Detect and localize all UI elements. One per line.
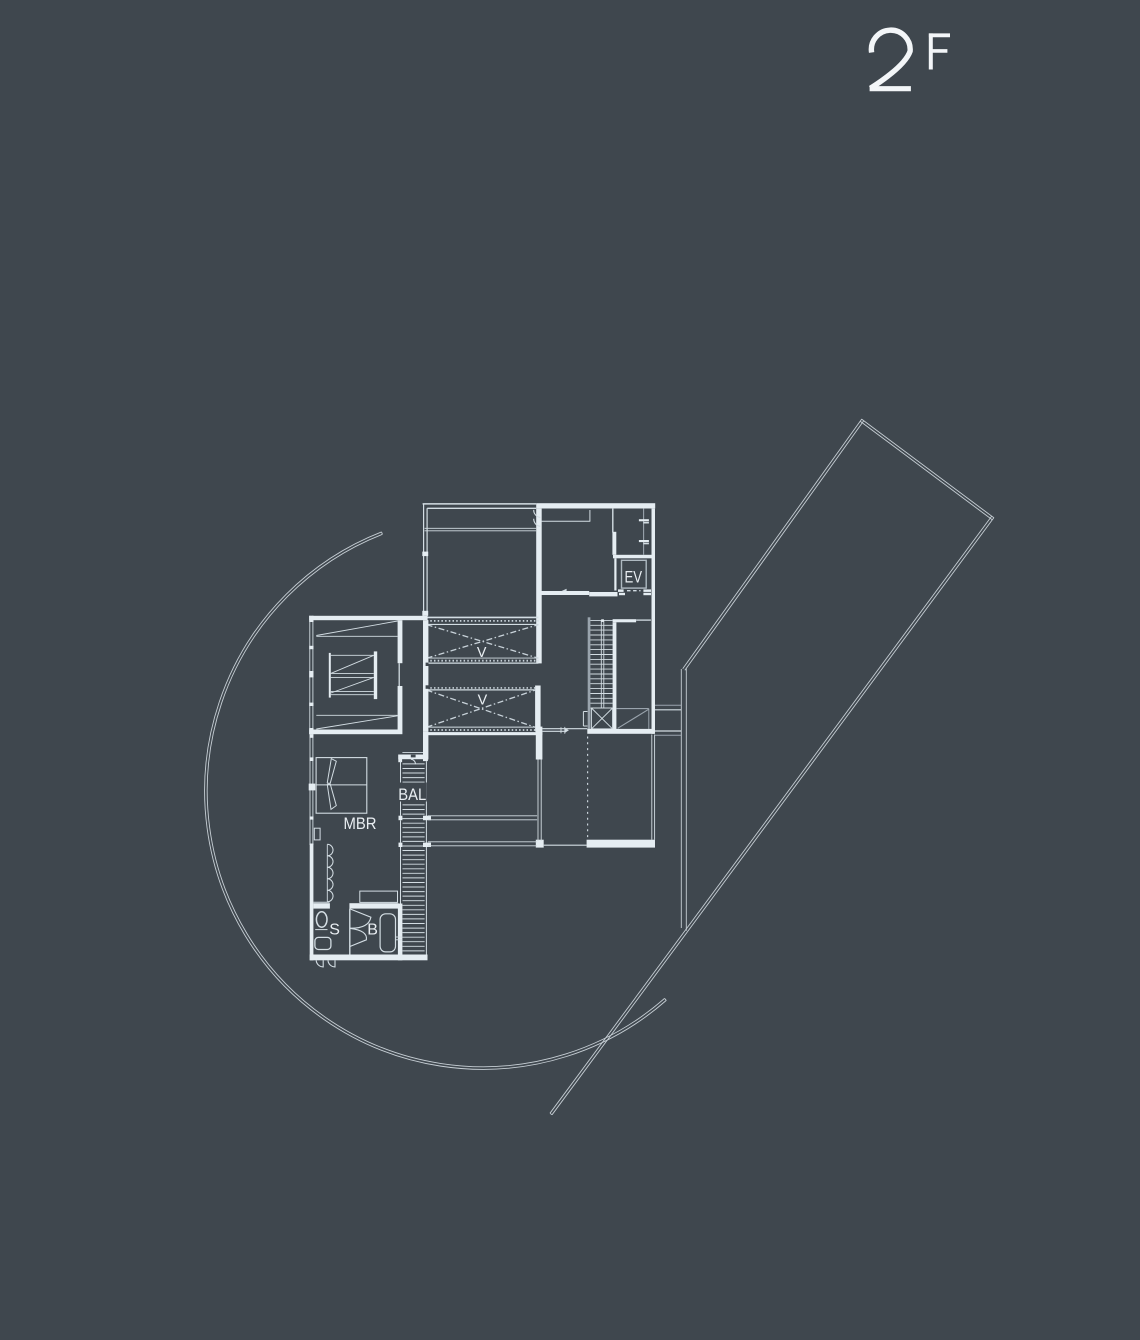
- svg-text:MBR: MBR: [344, 814, 377, 833]
- svg-text:V: V: [478, 693, 488, 709]
- svg-text:EV: EV: [625, 567, 643, 586]
- svg-text:BAL: BAL: [398, 785, 426, 804]
- svg-text:V: V: [477, 645, 487, 661]
- svg-text:B: B: [367, 922, 378, 939]
- svg-text:S: S: [329, 922, 340, 939]
